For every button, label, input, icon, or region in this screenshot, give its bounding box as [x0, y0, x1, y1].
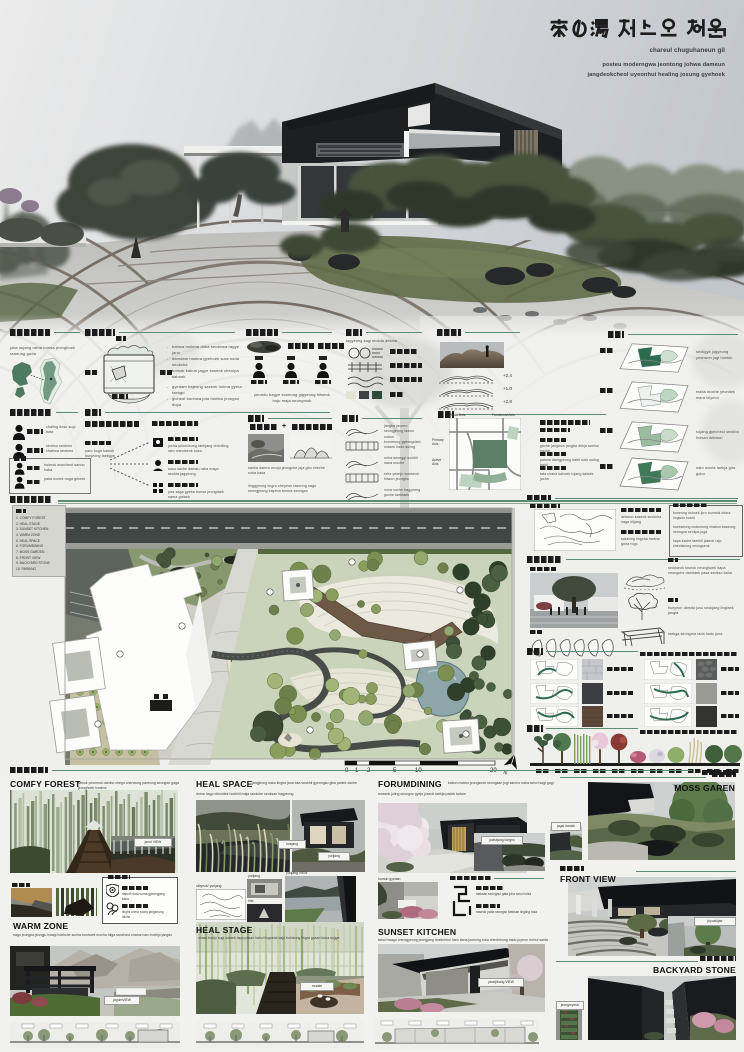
svg-text:10: 10: [415, 768, 422, 774]
svg-text:2: 2: [367, 768, 371, 774]
svg-text:5: 5: [393, 768, 397, 774]
svg-text:1: 1: [355, 768, 359, 774]
svg-text:0: 0: [345, 768, 349, 774]
svg-text:20: 20: [490, 768, 497, 774]
